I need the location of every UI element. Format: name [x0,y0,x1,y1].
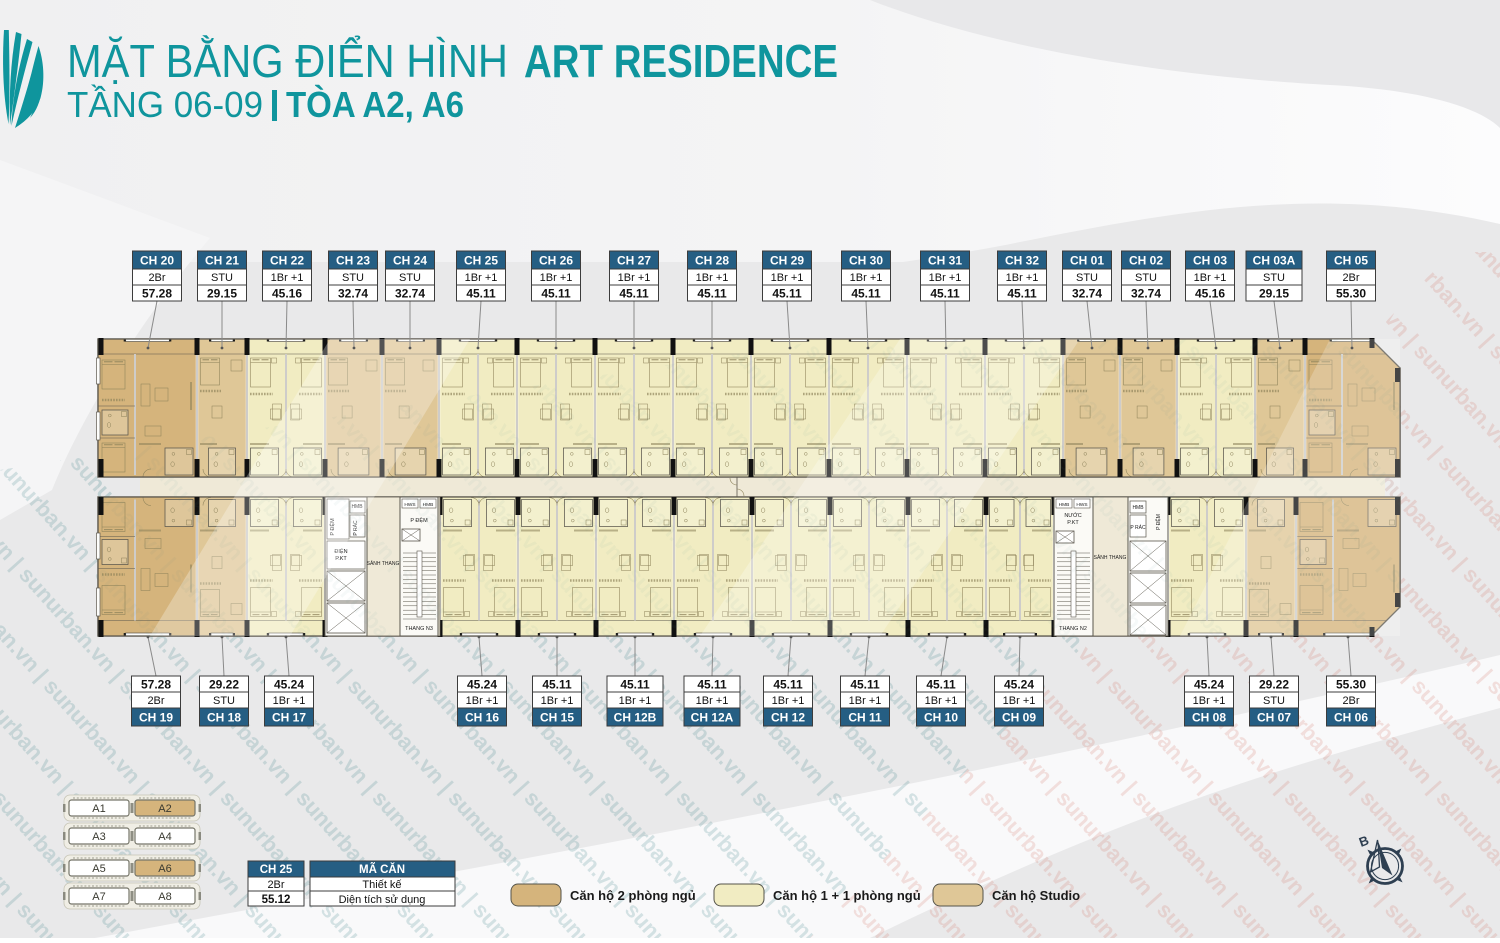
svg-text:CH 06: CH 06 [1334,711,1368,725]
svg-text:CH 23: CH 23 [336,254,370,268]
svg-text:45.11: 45.11 [620,678,650,692]
svg-text:1Br +1: 1Br +1 [465,272,498,284]
svg-text:Thiết kế: Thiết kế [362,879,401,891]
svg-text:STU: STU [1135,272,1157,284]
svg-text:45.16: 45.16 [1195,287,1225,301]
svg-text:1Br +1: 1Br +1 [696,695,729,707]
svg-text:A7: A7 [92,891,105,903]
svg-text:CH 08: CH 08 [1192,711,1226,725]
svg-text:45.11: 45.11 [697,287,727,301]
svg-text:1Br +1: 1Br +1 [772,695,805,707]
svg-text:STU: STU [1263,695,1285,707]
svg-text:STU: STU [399,272,421,284]
svg-text:45.11: 45.11 [851,287,881,301]
svg-text:1Br +1: 1Br +1 [541,695,574,707]
svg-text:CH 11: CH 11 [848,711,882,725]
svg-text:Căn hộ Studio: Căn hộ Studio [992,888,1080,903]
svg-text:CH 12A: CH 12A [691,711,734,725]
svg-text:CH 07: CH 07 [1257,711,1291,725]
svg-text:THANG N3: THANG N3 [405,626,433,632]
svg-text:STU: STU [1263,272,1285,284]
svg-text:45.11: 45.11 [930,287,960,301]
svg-text:CH 15: CH 15 [540,711,574,725]
svg-text:57.28: 57.28 [142,287,172,301]
svg-text:STU: STU [342,272,364,284]
svg-text:CH 12: CH 12 [771,711,805,725]
svg-text:CH 21: CH 21 [205,254,239,268]
svg-text:1Br +1: 1Br +1 [925,695,958,707]
svg-text:45.11: 45.11 [1007,287,1037,301]
svg-text:45.11: 45.11 [697,678,727,692]
svg-text:A3: A3 [92,831,105,843]
svg-text:29.22: 29.22 [209,678,239,692]
svg-text:HMB: HMB [1132,505,1144,511]
svg-text:1Br +1: 1Br +1 [273,695,306,707]
svg-text:CH 02: CH 02 [1129,254,1163,268]
svg-text:A4: A4 [158,831,171,843]
svg-text:CH 10: CH 10 [924,711,958,725]
svg-text:TÒA A2, A6: TÒA A2, A6 [286,83,464,125]
svg-text:CH 16: CH 16 [465,711,499,725]
svg-text:CH 03A: CH 03A [1253,254,1296,268]
svg-text:CH 17: CH 17 [272,711,306,725]
svg-text:A1: A1 [92,803,105,815]
svg-text:CH 01: CH 01 [1070,254,1104,268]
svg-text:CH 30: CH 30 [849,254,883,268]
svg-text:CH 20: CH 20 [140,254,174,268]
svg-text:45.24: 45.24 [467,678,497,692]
svg-text:CH 24: CH 24 [393,254,427,268]
svg-text:A8: A8 [158,891,171,903]
svg-text:45.11: 45.11 [850,678,880,692]
svg-text:HWS: HWS [1076,502,1087,508]
svg-text:1Br +1: 1Br +1 [540,272,573,284]
svg-text:1Br +1: 1Br +1 [929,272,962,284]
svg-text:CH 25: CH 25 [260,864,293,876]
svg-text:A2: A2 [158,803,171,815]
svg-text:CH 18: CH 18 [207,711,241,725]
svg-text:2Br: 2Br [1342,695,1359,707]
svg-text:CH 25: CH 25 [464,254,498,268]
svg-text:CH 31: CH 31 [928,254,962,268]
svg-text:1Br +1: 1Br +1 [1193,695,1226,707]
svg-text:HMB: HMB [1059,502,1070,508]
svg-text:CH 28: CH 28 [695,254,729,268]
svg-text:NƯỚC: NƯỚC [1064,512,1081,519]
svg-text:45.11: 45.11 [542,678,572,692]
svg-text:CH 03: CH 03 [1193,254,1227,268]
svg-text:32.74: 32.74 [1072,287,1102,301]
svg-text:P ĐỆM: P ĐỆM [1154,514,1162,530]
svg-text:45.24: 45.24 [1194,678,1224,692]
svg-text:Căn hộ 2 phòng ngủ: Căn hộ 2 phòng ngủ [570,888,696,903]
svg-text:A6: A6 [158,863,171,875]
svg-text:2Br: 2Br [147,695,164,707]
svg-text:45.11: 45.11 [926,678,956,692]
svg-text:CH 29: CH 29 [770,254,804,268]
svg-text:45.16: 45.16 [272,287,302,301]
svg-text:57.28: 57.28 [141,678,171,692]
svg-text:CH 27: CH 27 [617,254,651,268]
svg-text:45.24: 45.24 [1004,678,1034,692]
svg-text:1Br +1: 1Br +1 [850,272,883,284]
svg-text:2Br: 2Br [267,879,284,891]
svg-text:32.74: 32.74 [1131,287,1161,301]
svg-text:CH 09: CH 09 [1002,711,1036,725]
svg-text:29.15: 29.15 [1259,287,1289,301]
svg-text:32.74: 32.74 [395,287,425,301]
svg-text:MÃ CĂN: MÃ CĂN [359,863,405,876]
svg-text:STU: STU [1076,272,1098,284]
svg-text:2Br: 2Br [1342,272,1359,284]
svg-text:A5: A5 [92,863,105,875]
svg-text:55.30: 55.30 [1336,287,1366,301]
svg-text:55.30: 55.30 [1336,678,1366,692]
svg-text:TẦNG 06-09: TẦNG 06-09 [67,84,263,125]
svg-text:CH 26: CH 26 [539,254,573,268]
svg-text:1Br +1: 1Br +1 [466,695,499,707]
svg-text:ART RESIDENCE: ART RESIDENCE [524,35,838,87]
svg-text:45.11: 45.11 [541,287,571,301]
svg-text:45.11: 45.11 [772,287,802,301]
svg-text:1Br +1: 1Br +1 [271,272,304,284]
svg-text:CH 22: CH 22 [270,254,304,268]
svg-text:45.24: 45.24 [274,678,304,692]
svg-text:Diện tích sử dụng: Diện tích sử dụng [339,894,426,906]
svg-text:1Br +1: 1Br +1 [696,272,729,284]
svg-text:45.11: 45.11 [773,678,803,692]
svg-text:CH 12B: CH 12B [614,711,657,725]
svg-text:Căn hộ 1 + 1 phòng ngủ: Căn hộ 1 + 1 phòng ngủ [773,888,921,903]
svg-text:2Br: 2Br [148,272,165,284]
svg-text:29.22: 29.22 [1259,678,1289,692]
svg-text:CH 32: CH 32 [1005,254,1039,268]
svg-text:STU: STU [213,695,235,707]
svg-text:1Br +1: 1Br +1 [849,695,882,707]
svg-text:SẢNH THANG: SẢNH THANG [1094,554,1127,561]
svg-text:1Br +1: 1Br +1 [618,272,651,284]
svg-text:P.KT: P.KT [1067,520,1079,526]
svg-text:1Br +1: 1Br +1 [1194,272,1227,284]
svg-text:1Br +1: 1Br +1 [771,272,804,284]
svg-text:29.15: 29.15 [207,287,237,301]
svg-text:MẶT BẰNG ĐIỂN HÌNH: MẶT BẰNG ĐIỂN HÌNH [67,35,508,87]
svg-text:45.11: 45.11 [466,287,496,301]
svg-text:1Br +1: 1Br +1 [1003,695,1036,707]
svg-text:1Br +1: 1Br +1 [619,695,652,707]
svg-text:55.12: 55.12 [262,894,291,906]
svg-text:CH 19: CH 19 [139,711,173,725]
svg-text:45.11: 45.11 [619,287,649,301]
svg-text:1Br +1: 1Br +1 [1006,272,1039,284]
svg-text:STU: STU [211,272,233,284]
svg-text:CH 05: CH 05 [1334,254,1368,268]
svg-text:32.74: 32.74 [338,287,368,301]
